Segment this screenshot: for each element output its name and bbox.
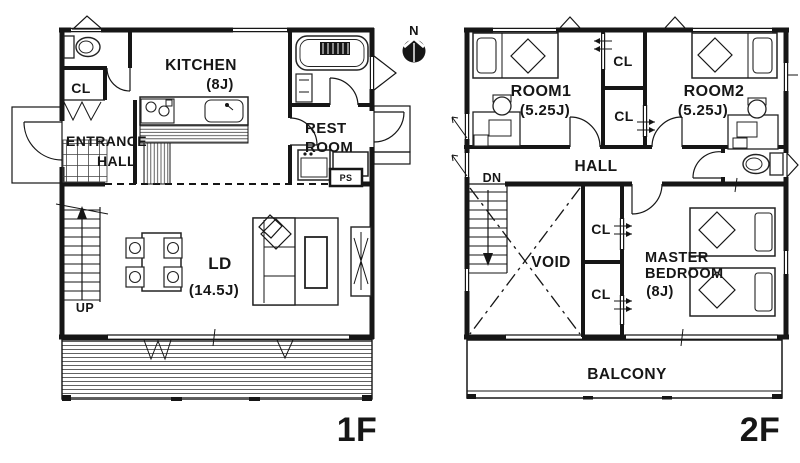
toilet-1f <box>64 36 100 58</box>
toilet-2f <box>743 153 783 175</box>
bath-vanity <box>296 74 312 102</box>
bathroom <box>296 36 368 102</box>
stairs-2f <box>469 184 507 273</box>
sink <box>205 100 243 122</box>
floor-plan-drawing: CL ENTRANCE HALL KITCHEN (8J) REST ROOM … <box>0 0 800 463</box>
label-room1-size: (5.25J) <box>520 102 570 119</box>
label-balcony: BALCONY <box>587 366 667 383</box>
label-entrance: ENTRANCE <box>66 133 147 149</box>
pillow <box>753 38 772 73</box>
north-label: N <box>409 23 419 38</box>
label-cl-master-lower: CL <box>591 286 611 302</box>
label-kitchen-size: (8J) <box>206 77 233 93</box>
chair-room2 <box>748 100 766 118</box>
label-ld: LD <box>208 254 231 273</box>
label-cl-upper: CL <box>613 53 633 69</box>
backdoor-step <box>374 152 410 164</box>
dining-set <box>126 233 182 291</box>
pillow <box>477 38 496 73</box>
coffee-table <box>305 237 327 288</box>
label-entrance-hall: HALL <box>97 153 136 169</box>
label-up: UP <box>76 301 94 315</box>
floor2-plan: ROOM1 (5.25J) ROOM2 (5.25J) CL CL HALL D… <box>452 17 798 449</box>
wood-deck <box>62 340 372 401</box>
label-master-2: BEDROOM <box>645 266 724 282</box>
label-void: VOID <box>531 254 571 271</box>
kitchen-counter <box>140 97 248 184</box>
floor1-title: 1F <box>337 411 377 449</box>
label-cl-1f: CL <box>71 80 91 96</box>
north-compass: N <box>403 23 426 63</box>
label-kitchen: KITCHEN <box>165 57 237 74</box>
label-restroom-2: ROOM <box>305 139 353 156</box>
label-cl-lower: CL <box>614 108 634 124</box>
backdoor-landing <box>374 106 410 152</box>
label-hall-2f: HALL <box>575 158 618 175</box>
label-room2: ROOM2 <box>684 83 745 100</box>
label-ps: PS <box>340 173 353 183</box>
floor-plan-sheet: CL ENTRANCE HALL KITCHEN (8J) REST ROOM … <box>0 0 800 463</box>
floor2-title: 2F <box>740 411 780 449</box>
label-room2-size: (5.25J) <box>678 102 728 119</box>
label-master-1: MASTER <box>645 250 709 266</box>
label-master-size: (8J) <box>646 284 673 300</box>
chair-room1 <box>493 97 511 115</box>
label-room1: ROOM1 <box>511 83 572 100</box>
floor1-plan: CL ENTRANCE HALL KITCHEN (8J) REST ROOM … <box>12 16 410 449</box>
label-dn: DN <box>483 171 502 185</box>
label-ld-size: (14.5J) <box>189 282 239 299</box>
label-cl-master-upper: CL <box>591 221 611 237</box>
entrance-porch <box>12 107 62 183</box>
label-restroom-1: REST <box>305 120 347 137</box>
living-furniture <box>253 215 371 305</box>
